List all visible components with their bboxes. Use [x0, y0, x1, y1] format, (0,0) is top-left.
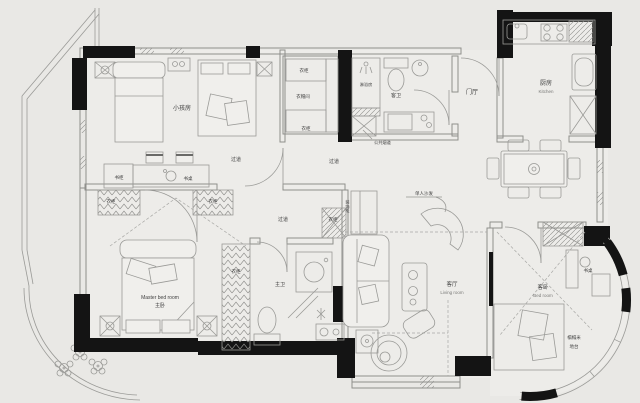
entry-closet	[543, 222, 583, 246]
label-guest-bedroom: 客卧	[537, 283, 549, 291]
label-living-room: 客厅	[446, 280, 458, 288]
single-bed	[113, 62, 165, 142]
label-wardrobe-master: 衣柜	[232, 268, 241, 275]
label-flue: 公共烟道	[374, 139, 392, 146]
label-guest-bedroom-en: Bed room	[533, 293, 553, 298]
label-single-sofa: 单人沙发	[415, 190, 433, 197]
label-deco-cabinet: 装饰柜	[345, 199, 351, 214]
label-kids-bedroom: 小孩房	[173, 104, 191, 112]
sofa	[343, 235, 389, 327]
label-master-bedroom: 主卧	[155, 302, 165, 309]
label-guest-desk: 书桌	[584, 267, 593, 274]
label-hallway-2: 过道	[329, 158, 339, 165]
label-platform: 地台	[570, 343, 579, 350]
plant-icon	[89, 359, 107, 374]
corridor-closet	[322, 208, 346, 238]
plant-icon	[55, 361, 73, 376]
tv-panel	[489, 252, 493, 306]
label-bookcase: 书柜	[115, 174, 124, 181]
master-bed	[120, 240, 196, 333]
label-tatami: 榻榻米	[567, 334, 581, 341]
label-wardrobe-cloak-top: 衣柜	[300, 67, 309, 74]
label-wardrobe-north-right: 衣柜	[209, 198, 218, 205]
label-master-bathroom: 主卫	[275, 281, 285, 288]
label-cloakroom: 衣帽间	[296, 93, 310, 100]
label-hallway-3: 过道	[278, 216, 288, 223]
floor-plan-canvas: 小孩房 书柜 书桌 过道 过道 过道 衣柜 衣帽间 衣柜 淋浴房 客卫 门厅 厨…	[0, 0, 640, 403]
label-shower-room: 淋浴房	[360, 81, 373, 88]
label-wardrobe-cloak-bottom: 衣柜	[302, 125, 311, 132]
label-wardrobe-corridor: 衣柜	[329, 216, 338, 223]
label-master-bedroom-en: Master bed room	[141, 295, 179, 301]
label-desk: 书桌	[184, 175, 193, 182]
label-guest-bathroom: 客卫	[391, 92, 401, 99]
label-wardrobe-north-left: 衣柜	[107, 198, 116, 205]
label-kitchen-en: Kitchen	[538, 89, 554, 94]
label-hallway-1: 过道	[231, 156, 241, 163]
label-foyer: 门厅	[466, 88, 478, 96]
double-bed	[198, 60, 256, 136]
label-living-room-en: Living room	[440, 290, 464, 295]
label-kitchen: 厨房	[540, 79, 552, 87]
floor-plan-drawing: 小孩房 书柜 书桌 过道 过道 过道 衣柜 衣帽间 衣柜 淋浴房 客卫 门厅 厨…	[0, 0, 640, 403]
